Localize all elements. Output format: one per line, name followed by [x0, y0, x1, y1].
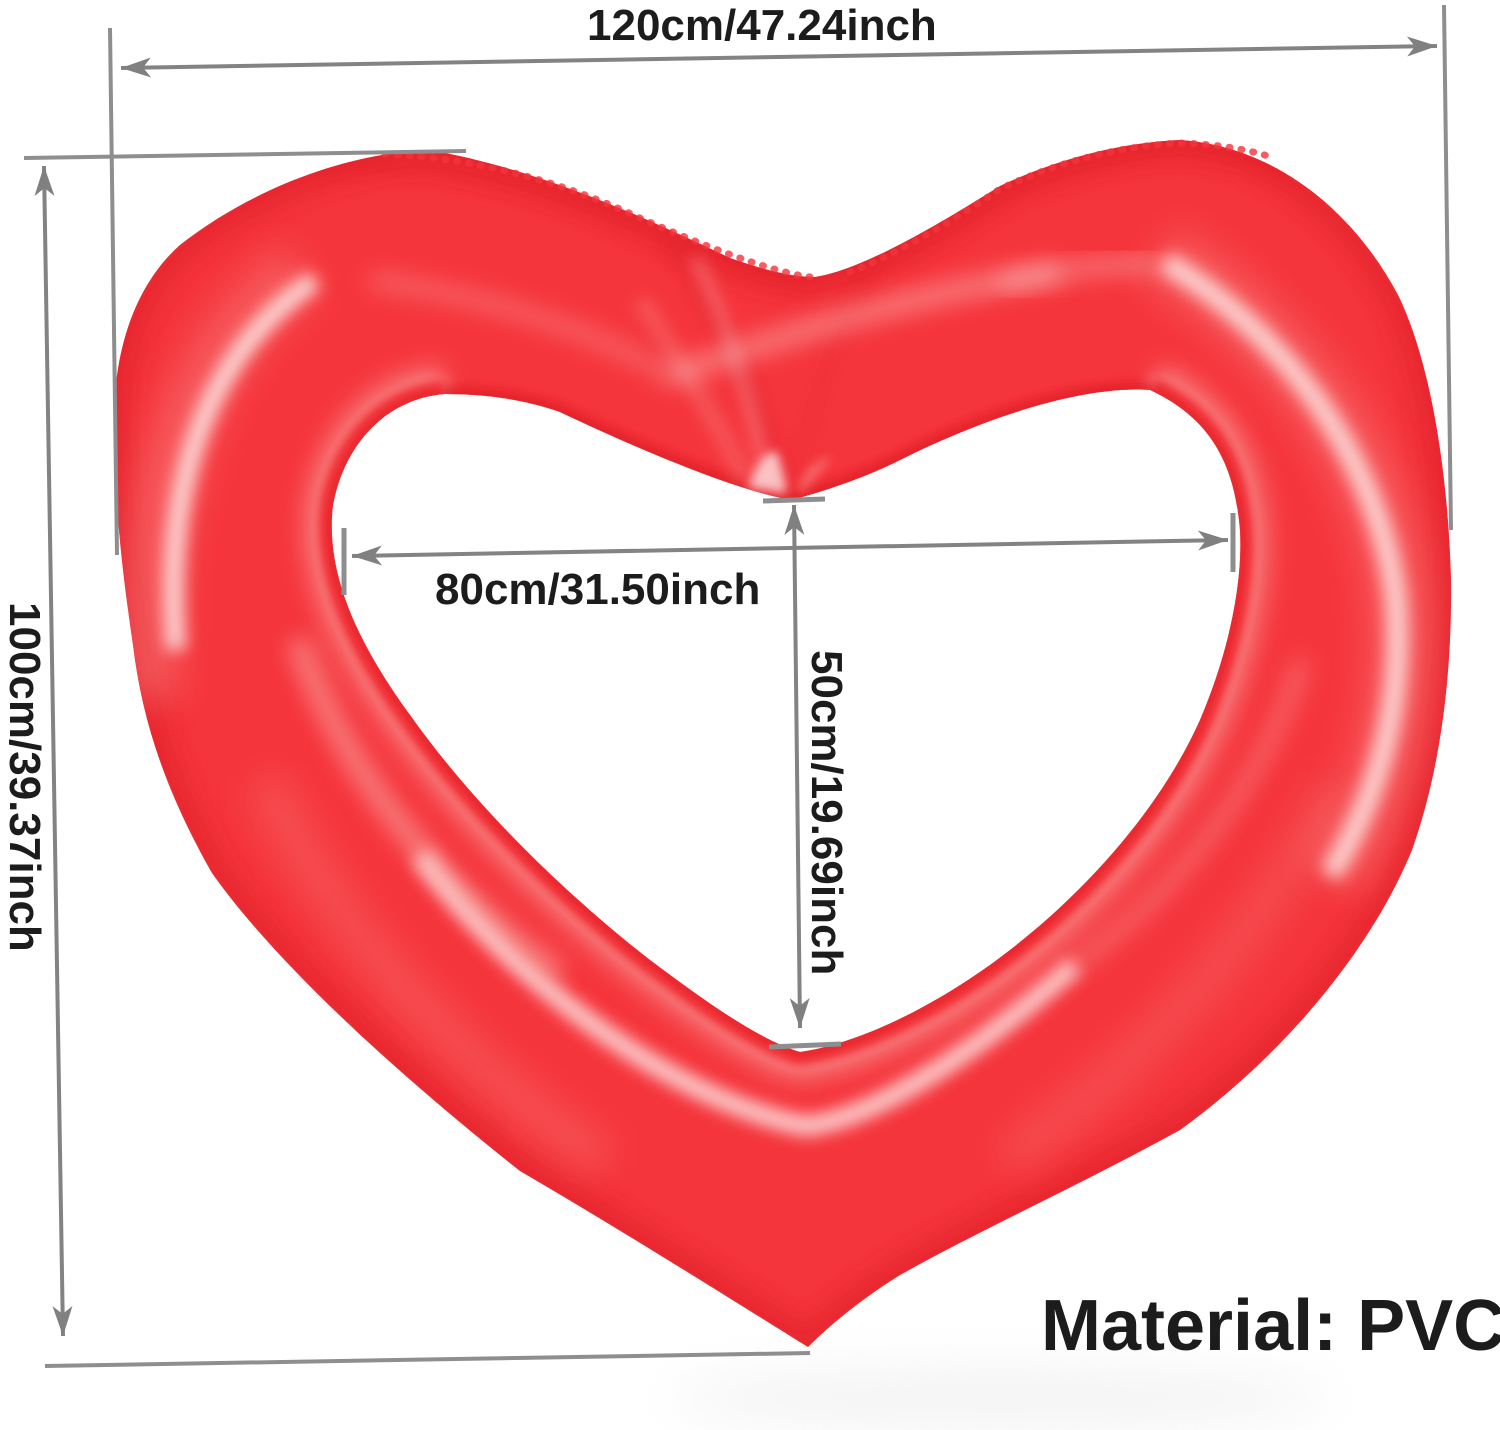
- svg-text:80cm/31.50inch: 80cm/31.50inch: [435, 565, 760, 614]
- svg-text:Material: PVC: Material: PVC: [1041, 1286, 1500, 1366]
- svg-text:100cm/39.37inch: 100cm/39.37inch: [0, 602, 49, 952]
- svg-text:120cm/47.24inch: 120cm/47.24inch: [587, 1, 937, 50]
- svg-text:50cm/19.69inch: 50cm/19.69inch: [802, 650, 851, 975]
